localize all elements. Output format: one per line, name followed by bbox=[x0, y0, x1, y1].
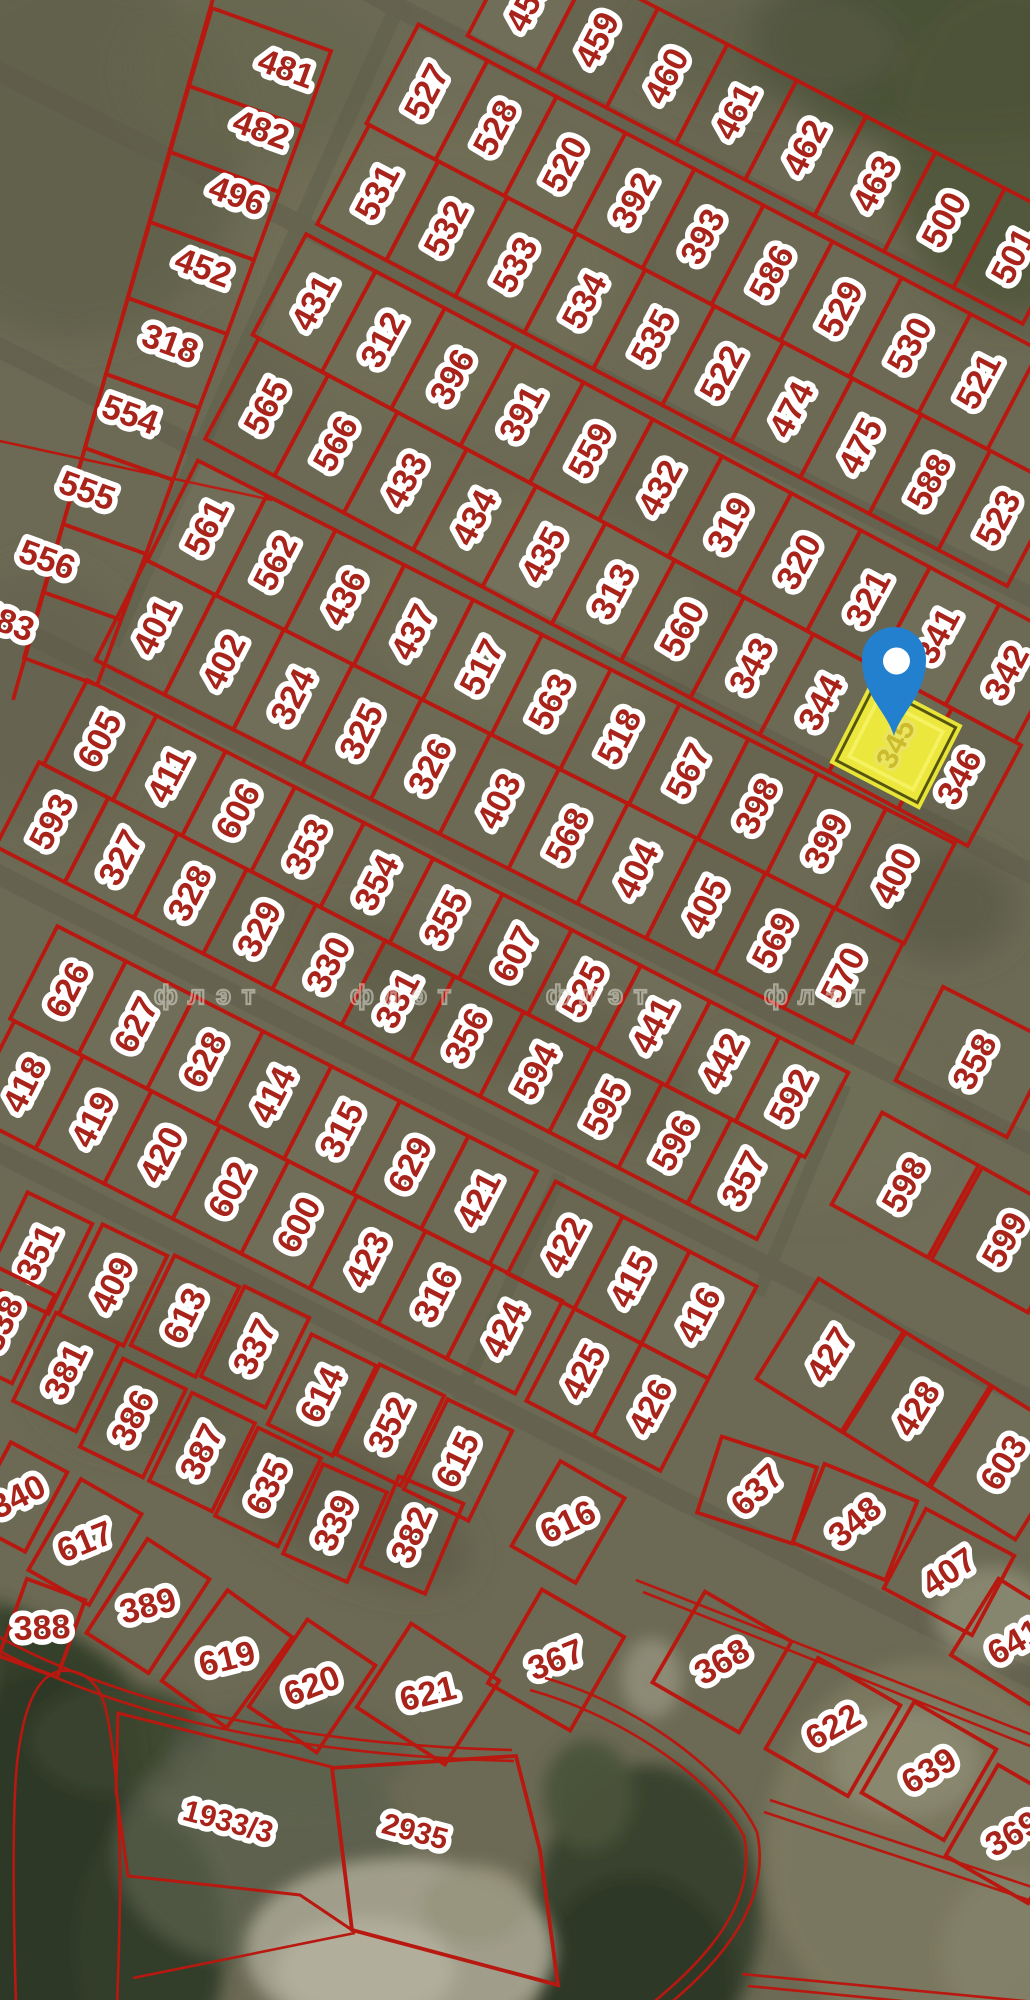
svg-text:флэт: флэт bbox=[350, 980, 462, 1010]
svg-text:флэт: флэт bbox=[154, 980, 266, 1010]
svg-text:флэт: флэт bbox=[764, 980, 876, 1010]
svg-text:388: 388 bbox=[13, 1608, 71, 1648]
svg-text:флэт: флэт bbox=[546, 980, 658, 1010]
